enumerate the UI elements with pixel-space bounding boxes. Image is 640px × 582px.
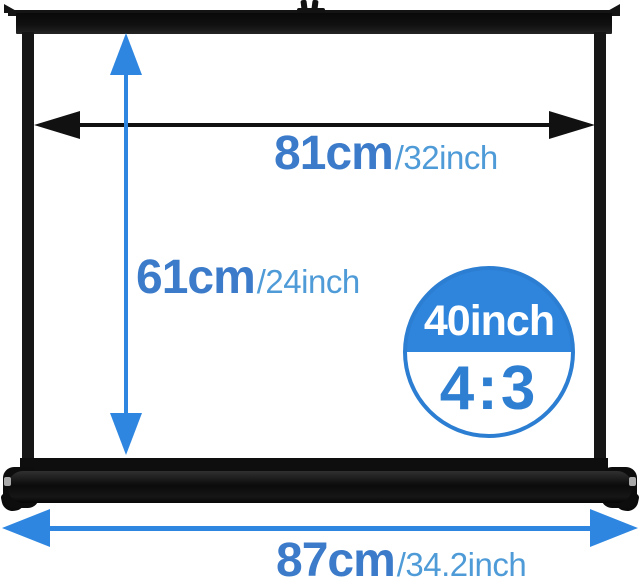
screen-height-cm-value: 61cm — [136, 254, 255, 302]
aspect-ratio-badge: 40inch 4:3 — [403, 266, 575, 438]
roller-tube — [8, 471, 632, 503]
frame-left-post — [22, 32, 34, 464]
arrowhead-down-icon — [110, 413, 142, 455]
projector-screen-dimension-diagram: 81cm /32inch 61cm /24inch 40inch 4:3 87c… — [0, 0, 640, 582]
tube-cap-highlight-left — [4, 477, 11, 486]
base-width-cm-value: 87cm — [276, 537, 395, 582]
arrowhead-left-icon — [2, 509, 50, 547]
frame-top-bar — [16, 13, 612, 34]
screen-width-inch-value: /32inch — [395, 141, 498, 174]
arrowhead-right-icon — [549, 111, 595, 139]
screen-height-label: 61cm /24inch — [136, 254, 360, 302]
tube-cap-highlight-right — [629, 477, 636, 486]
badge-aspect-ratio: 4:3 — [407, 358, 571, 420]
screen-width-cm-value: 81cm — [274, 130, 393, 178]
arrow-shaft — [44, 526, 596, 531]
frame-right-post — [594, 32, 606, 464]
arrowhead-right-icon — [590, 509, 638, 547]
screen-width-label: 81cm /32inch — [274, 130, 498, 178]
screen-height-inch-value: /24inch — [257, 265, 360, 298]
badge-diagonal-size: 40inch — [407, 300, 571, 343]
base-width-label: 87cm /34.2inch — [276, 537, 526, 582]
carry-handle — [297, 0, 325, 14]
arrow-shaft — [124, 69, 128, 419]
base-width-inch-value: /34.2inch — [397, 548, 526, 581]
screen-height-arrow-icon — [110, 33, 142, 455]
